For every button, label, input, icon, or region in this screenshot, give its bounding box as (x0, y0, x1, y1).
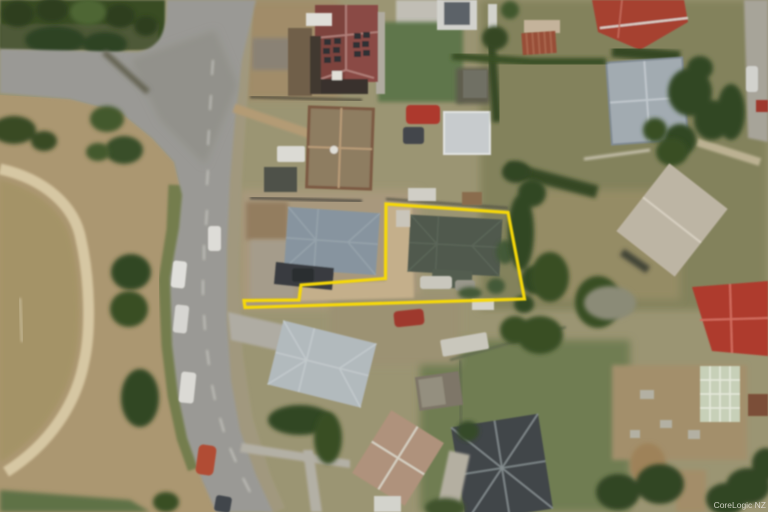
svg-text:CoreLogic NZ: CoreLogic NZ (714, 500, 766, 510)
